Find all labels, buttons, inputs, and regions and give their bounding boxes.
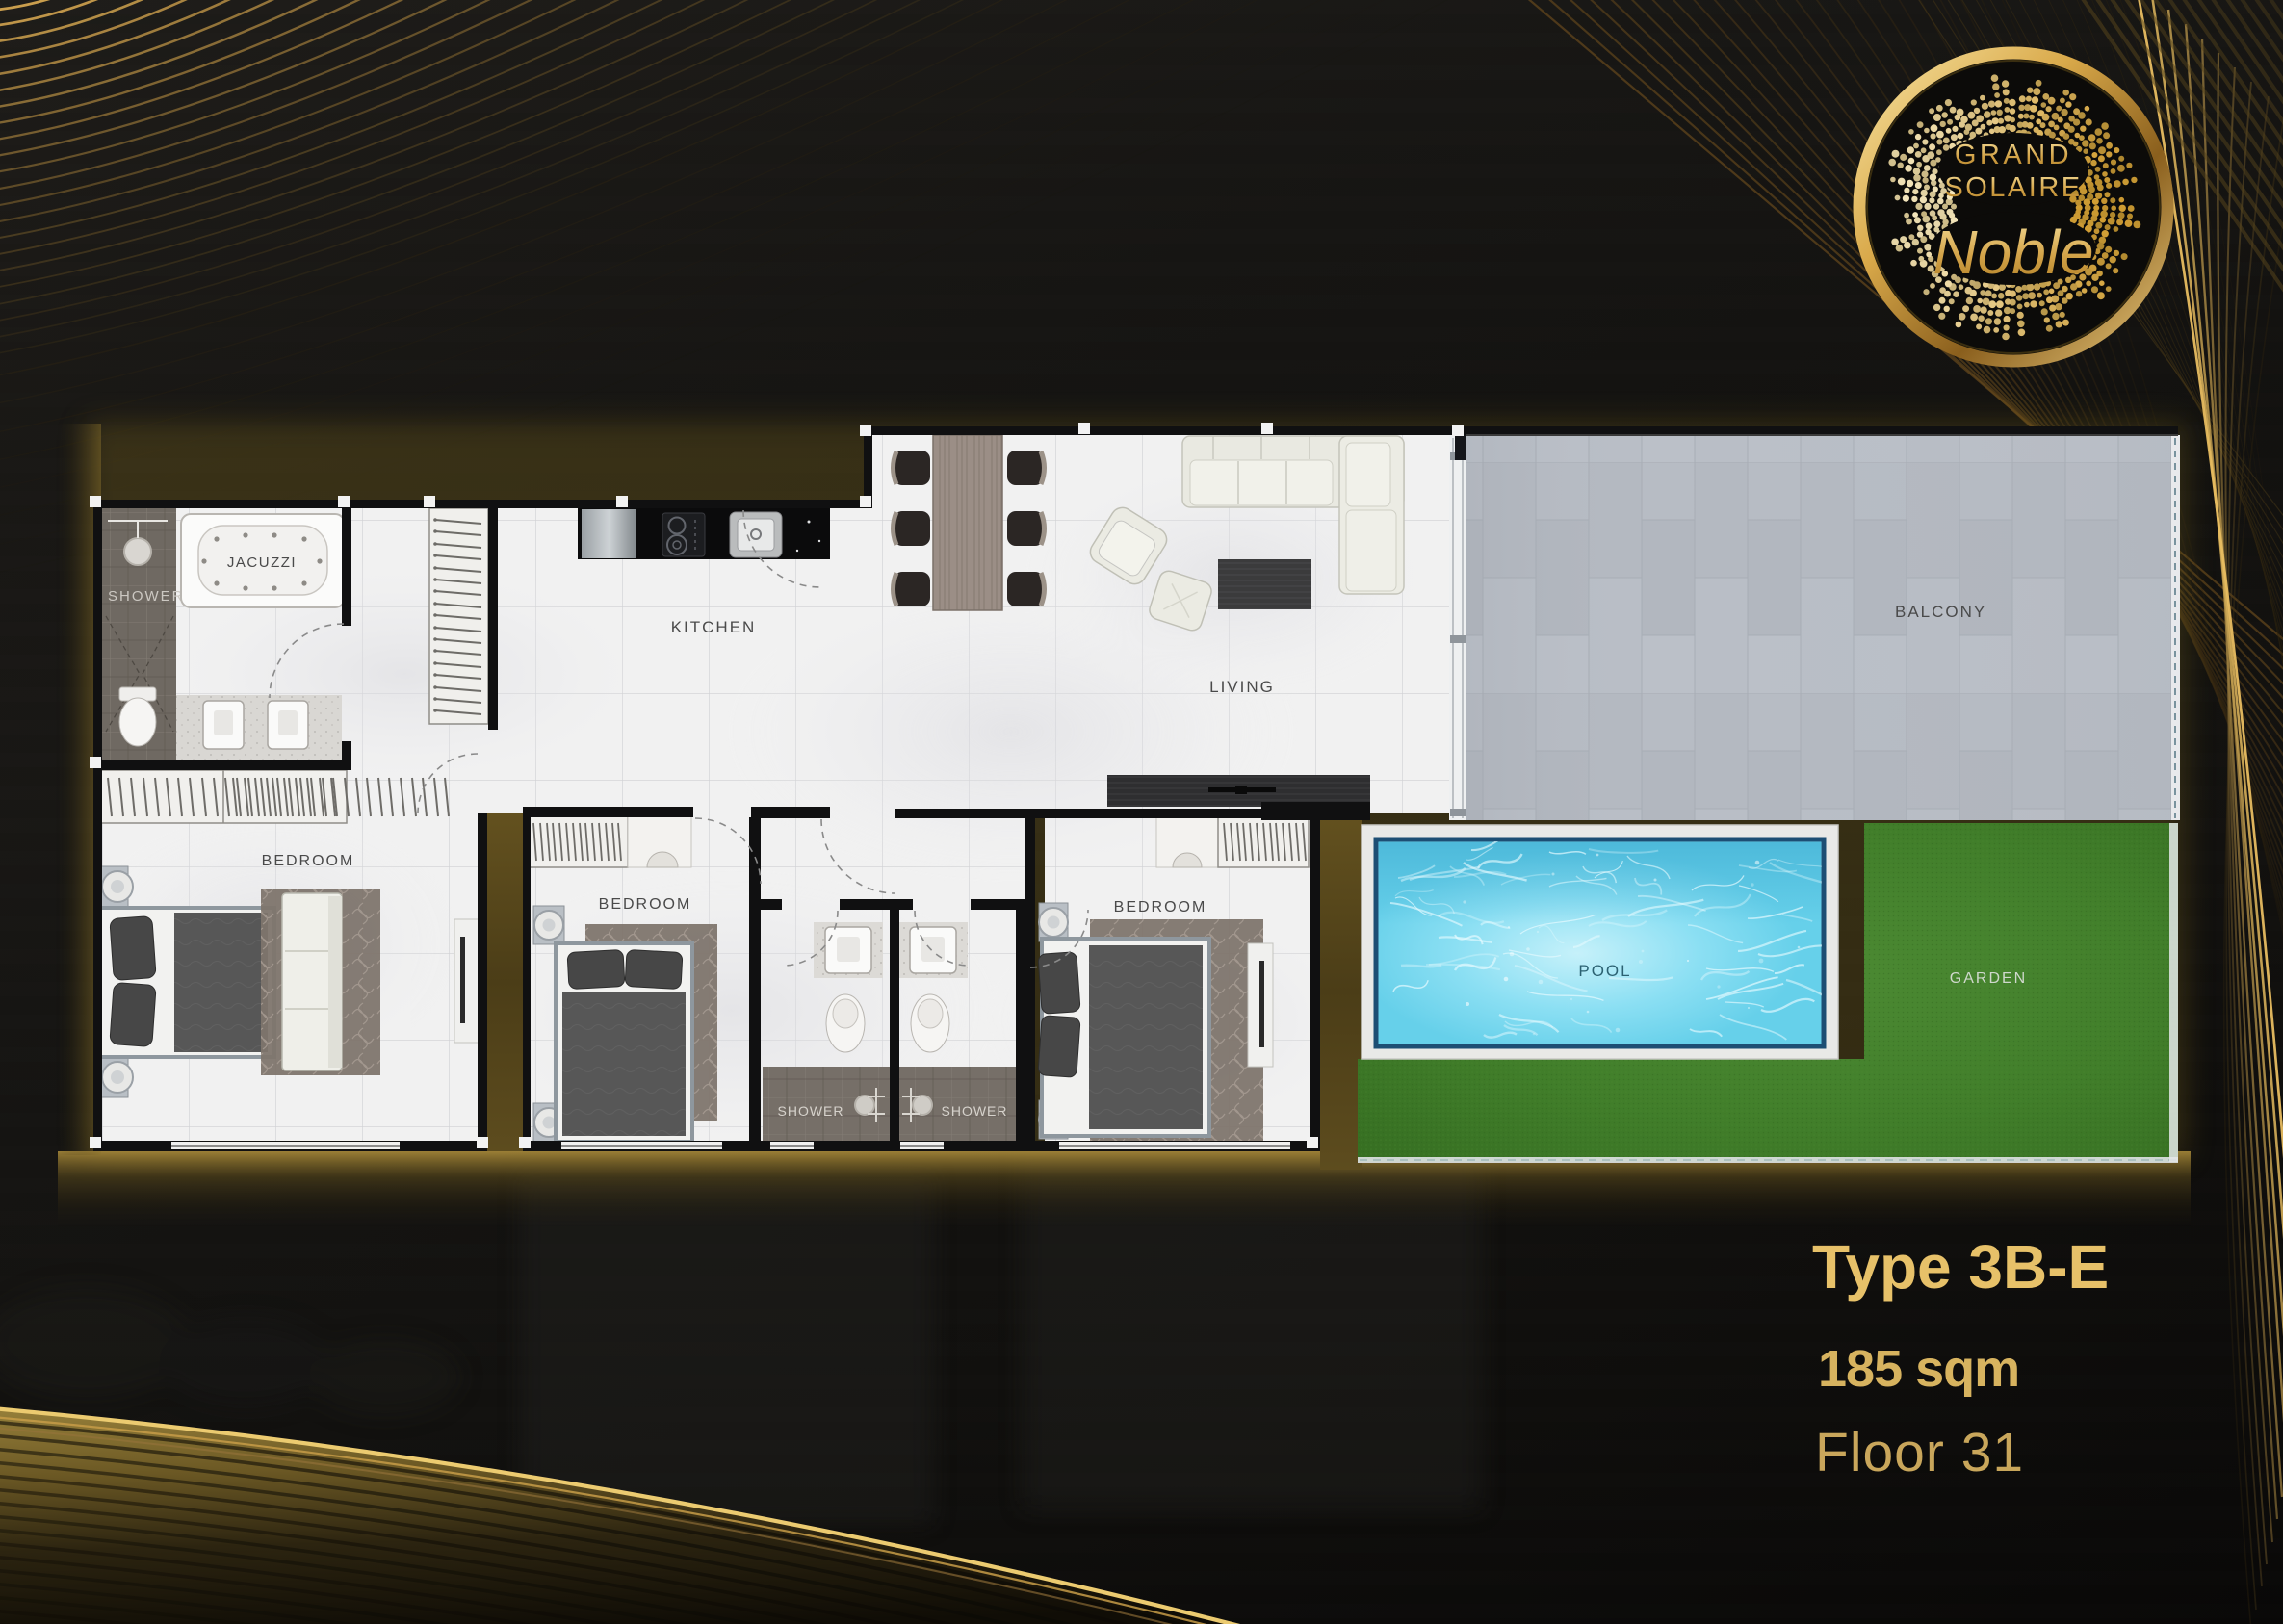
svg-text:POOL: POOL <box>1578 962 1631 980</box>
svg-text:Noble: Noble <box>1933 218 2093 287</box>
svg-text:KITCHEN: KITCHEN <box>671 618 757 636</box>
svg-text:BEDROOM: BEDROOM <box>262 853 355 869</box>
svg-text:GRAND: GRAND <box>1955 140 2072 170</box>
svg-text:JACUZZI: JACUZZI <box>227 554 297 571</box>
svg-text:Type 3B-E: Type 3B-E <box>1812 1232 2109 1302</box>
svg-text:SHOWER: SHOWER <box>108 588 185 605</box>
svg-text:GARDEN: GARDEN <box>1950 970 2027 987</box>
svg-text:185 sqm: 185 sqm <box>1818 1340 2019 1398</box>
svg-text:BEDROOM: BEDROOM <box>1114 899 1207 915</box>
svg-text:BEDROOM: BEDROOM <box>599 896 692 913</box>
svg-text:SHOWER: SHOWER <box>778 1103 844 1119</box>
svg-text:SHOWER: SHOWER <box>942 1103 1008 1119</box>
svg-text:BALCONY: BALCONY <box>1895 603 1986 621</box>
svg-text:Floor 31: Floor 31 <box>1815 1422 2024 1483</box>
svg-text:SOLAIRE: SOLAIRE <box>1944 172 2082 203</box>
svg-text:LIVING: LIVING <box>1209 678 1275 696</box>
